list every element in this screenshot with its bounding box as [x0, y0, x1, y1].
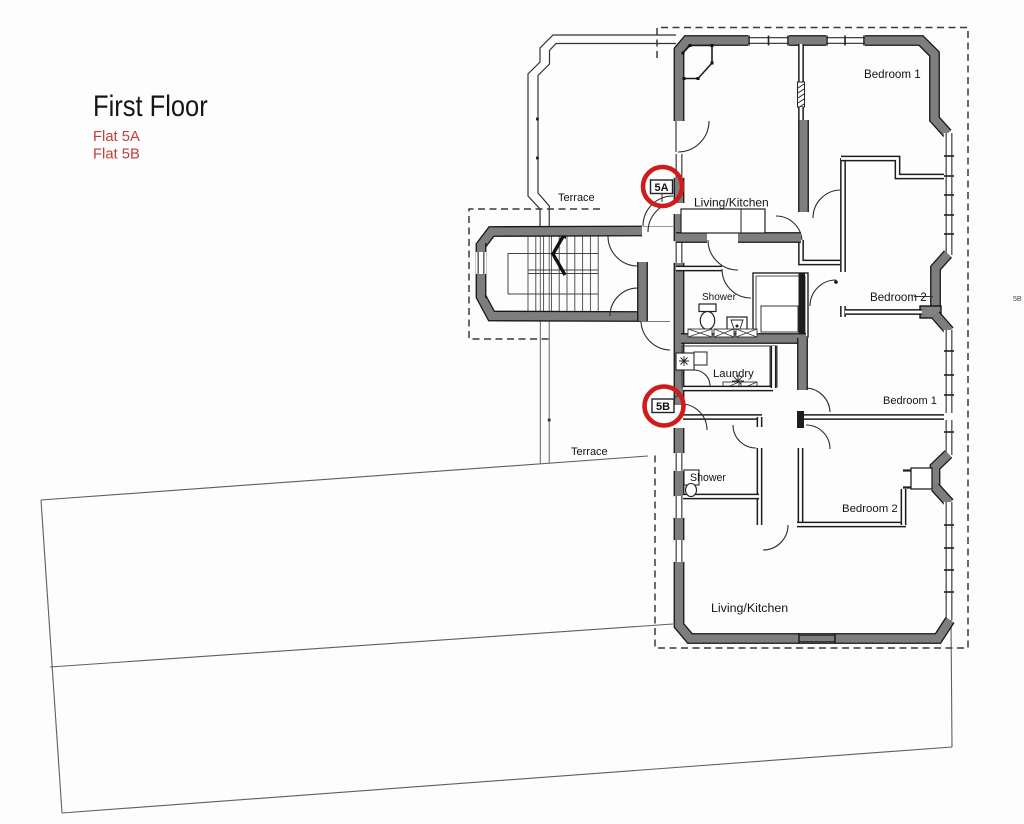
- svg-text:5B: 5B: [1013, 296, 1022, 303]
- svg-text:Living/Kitchen: Living/Kitchen: [711, 601, 788, 615]
- svg-text:Bedroom 1: Bedroom 1: [883, 395, 937, 407]
- svg-text:Flat 5B: Flat 5B: [93, 147, 140, 163]
- svg-text:Shower: Shower: [702, 292, 737, 303]
- svg-text:5B: 5B: [656, 401, 670, 413]
- svg-text:Terrace: Terrace: [558, 192, 595, 204]
- svg-text:Shower: Shower: [690, 472, 726, 484]
- svg-text:First Floor: First Floor: [93, 89, 208, 122]
- svg-text:5A: 5A: [654, 182, 668, 194]
- svg-text:Laundry: Laundry: [713, 368, 754, 380]
- svg-text:Flat 5A: Flat 5A: [93, 129, 140, 145]
- svg-text:Bedroom 2: Bedroom 2: [870, 291, 927, 304]
- svg-text:Living/Kitchen: Living/Kitchen: [694, 196, 769, 210]
- svg-text:Terrace: Terrace: [571, 446, 608, 458]
- svg-text:Bedroom 1: Bedroom 1: [864, 68, 921, 81]
- svg-text:Bedroom 2: Bedroom 2: [842, 503, 898, 515]
